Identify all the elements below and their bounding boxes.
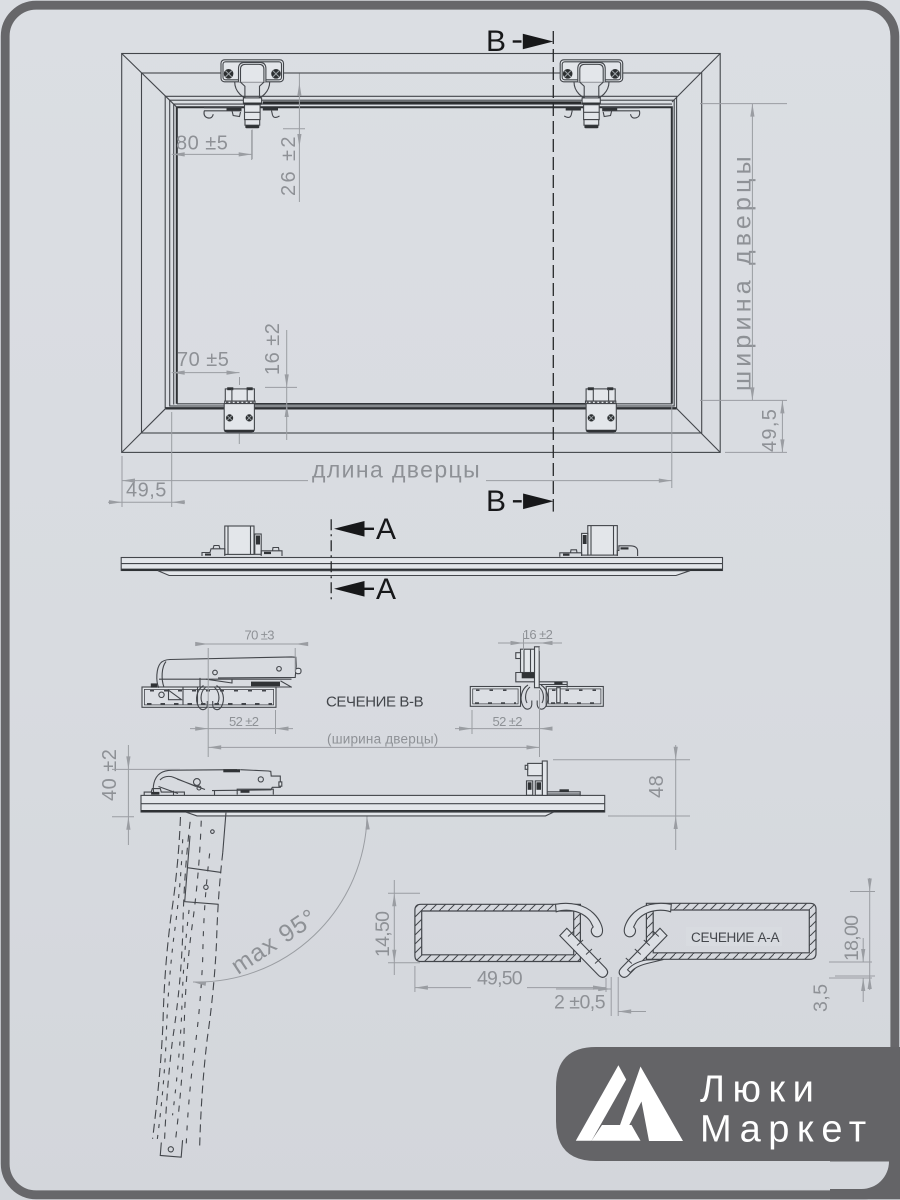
svg-text:A: A [376,573,396,606]
svg-text:70 ±5: 70 ±5 [177,349,229,371]
svg-text:Люки: Люки [700,1069,821,1111]
svg-text:18,00: 18,00 [841,915,863,961]
svg-text:(ширина дверцы): (ширина дверцы) [327,732,438,747]
svg-text:14,50: 14,50 [372,911,394,957]
svg-text:16 ±2: 16 ±2 [262,323,284,375]
svg-text:52 ±2: 52 ±2 [493,714,523,729]
svg-text:48: 48 [646,775,668,798]
svg-text:3,5: 3,5 [810,983,832,1012]
svg-text:B: B [486,485,506,518]
svg-text:80 ±5: 80 ±5 [176,133,228,155]
svg-text:Маркет: Маркет [700,1109,874,1151]
svg-text:70 ±3: 70 ±3 [245,627,275,642]
svg-text:СЕЧЕНИЕ B-B: СЕЧЕНИЕ B-B [326,694,424,711]
svg-text:2 ±0,5: 2 ±0,5 [554,992,606,1014]
svg-text:СЕЧЕНИЕ A-A: СЕЧЕНИЕ A-A [691,930,779,945]
svg-text:40 ±2: 40 ±2 [99,749,121,801]
svg-text:A: A [376,513,396,546]
svg-text:B: B [486,25,506,58]
svg-text:26 ±2: 26 ±2 [278,134,300,196]
svg-text:длина дверцы: длина дверцы [312,457,481,483]
svg-text:49,5: 49,5 [126,480,167,502]
svg-text:49,5: 49,5 [759,408,781,452]
svg-text:52 ±2: 52 ±2 [229,714,259,729]
svg-text:49,50: 49,50 [477,968,523,990]
svg-text:16 ±2: 16 ±2 [523,627,553,642]
